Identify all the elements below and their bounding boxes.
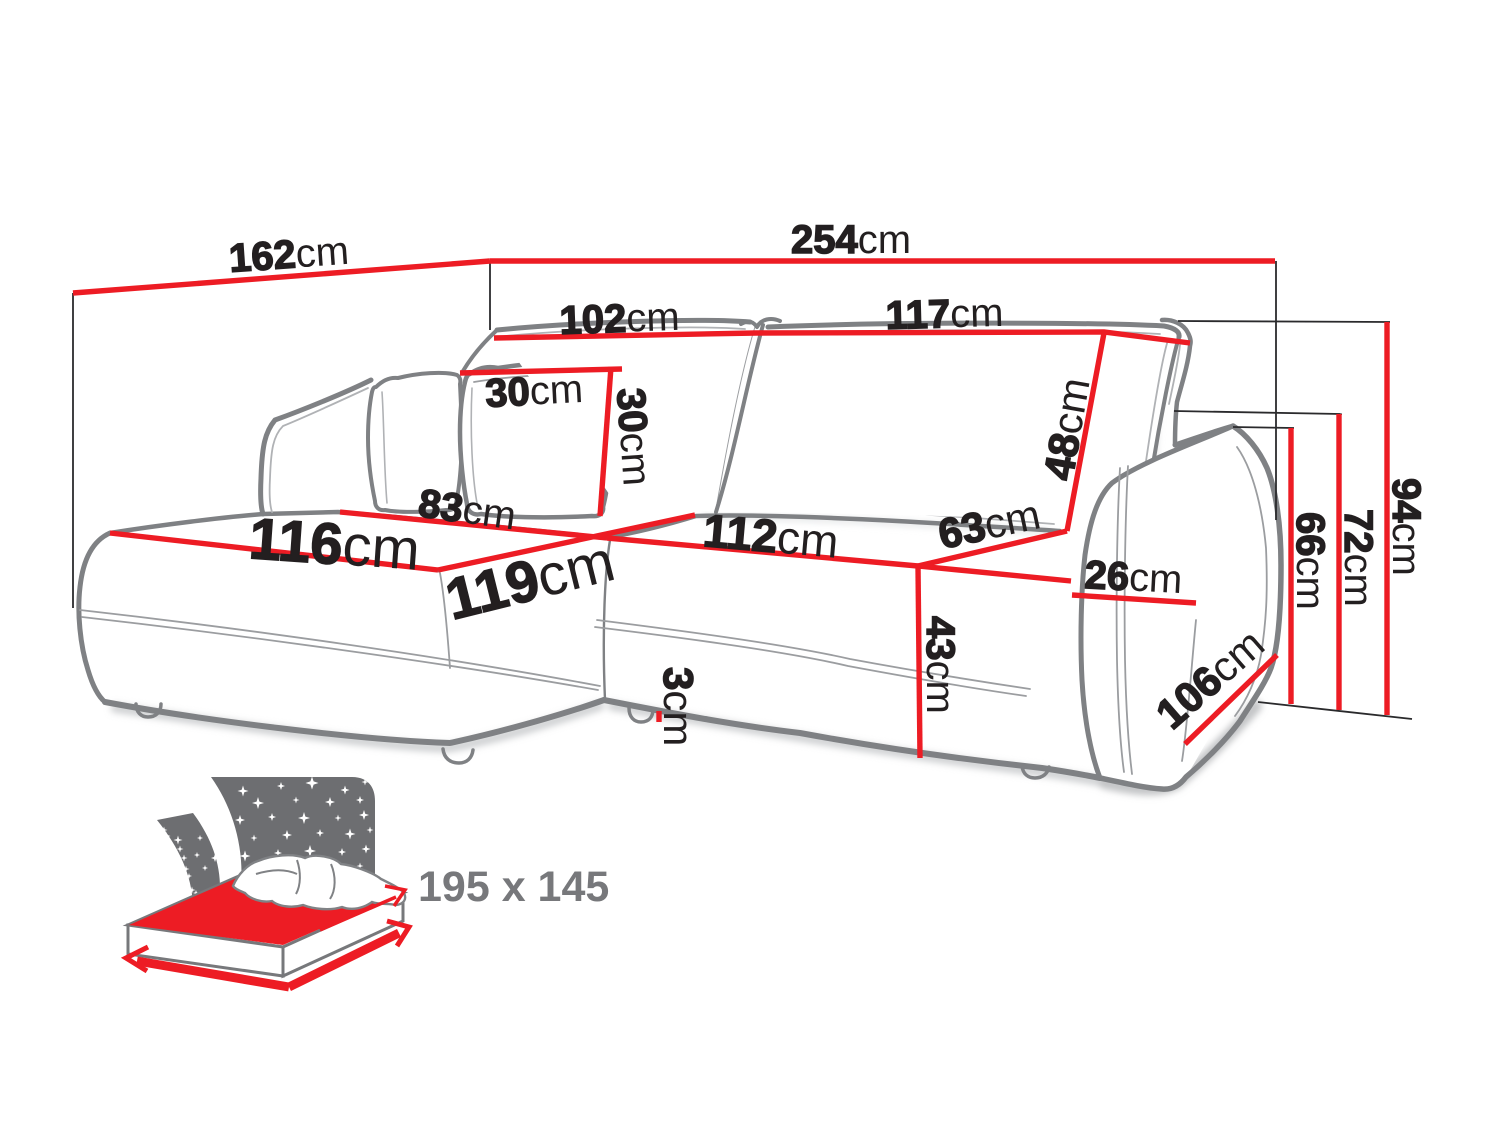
svg-text:66cm: 66cm (1288, 512, 1332, 610)
svg-text:195 x 145: 195 x 145 (418, 863, 609, 911)
svg-text:254cm: 254cm (791, 218, 911, 262)
svg-text:117cm: 117cm (885, 291, 1004, 338)
svg-text:26cm: 26cm (1084, 553, 1184, 602)
svg-text:116cm: 116cm (247, 506, 422, 583)
svg-text:102cm: 102cm (559, 295, 681, 343)
svg-text:3cm: 3cm (655, 667, 702, 746)
svg-text:43cm: 43cm (918, 616, 962, 714)
svg-text:72cm: 72cm (1336, 509, 1380, 607)
svg-text:30cm: 30cm (484, 367, 584, 416)
svg-text:162cm: 162cm (228, 229, 351, 281)
svg-text:30cm: 30cm (608, 387, 659, 488)
svg-text:94cm: 94cm (1384, 478, 1428, 576)
